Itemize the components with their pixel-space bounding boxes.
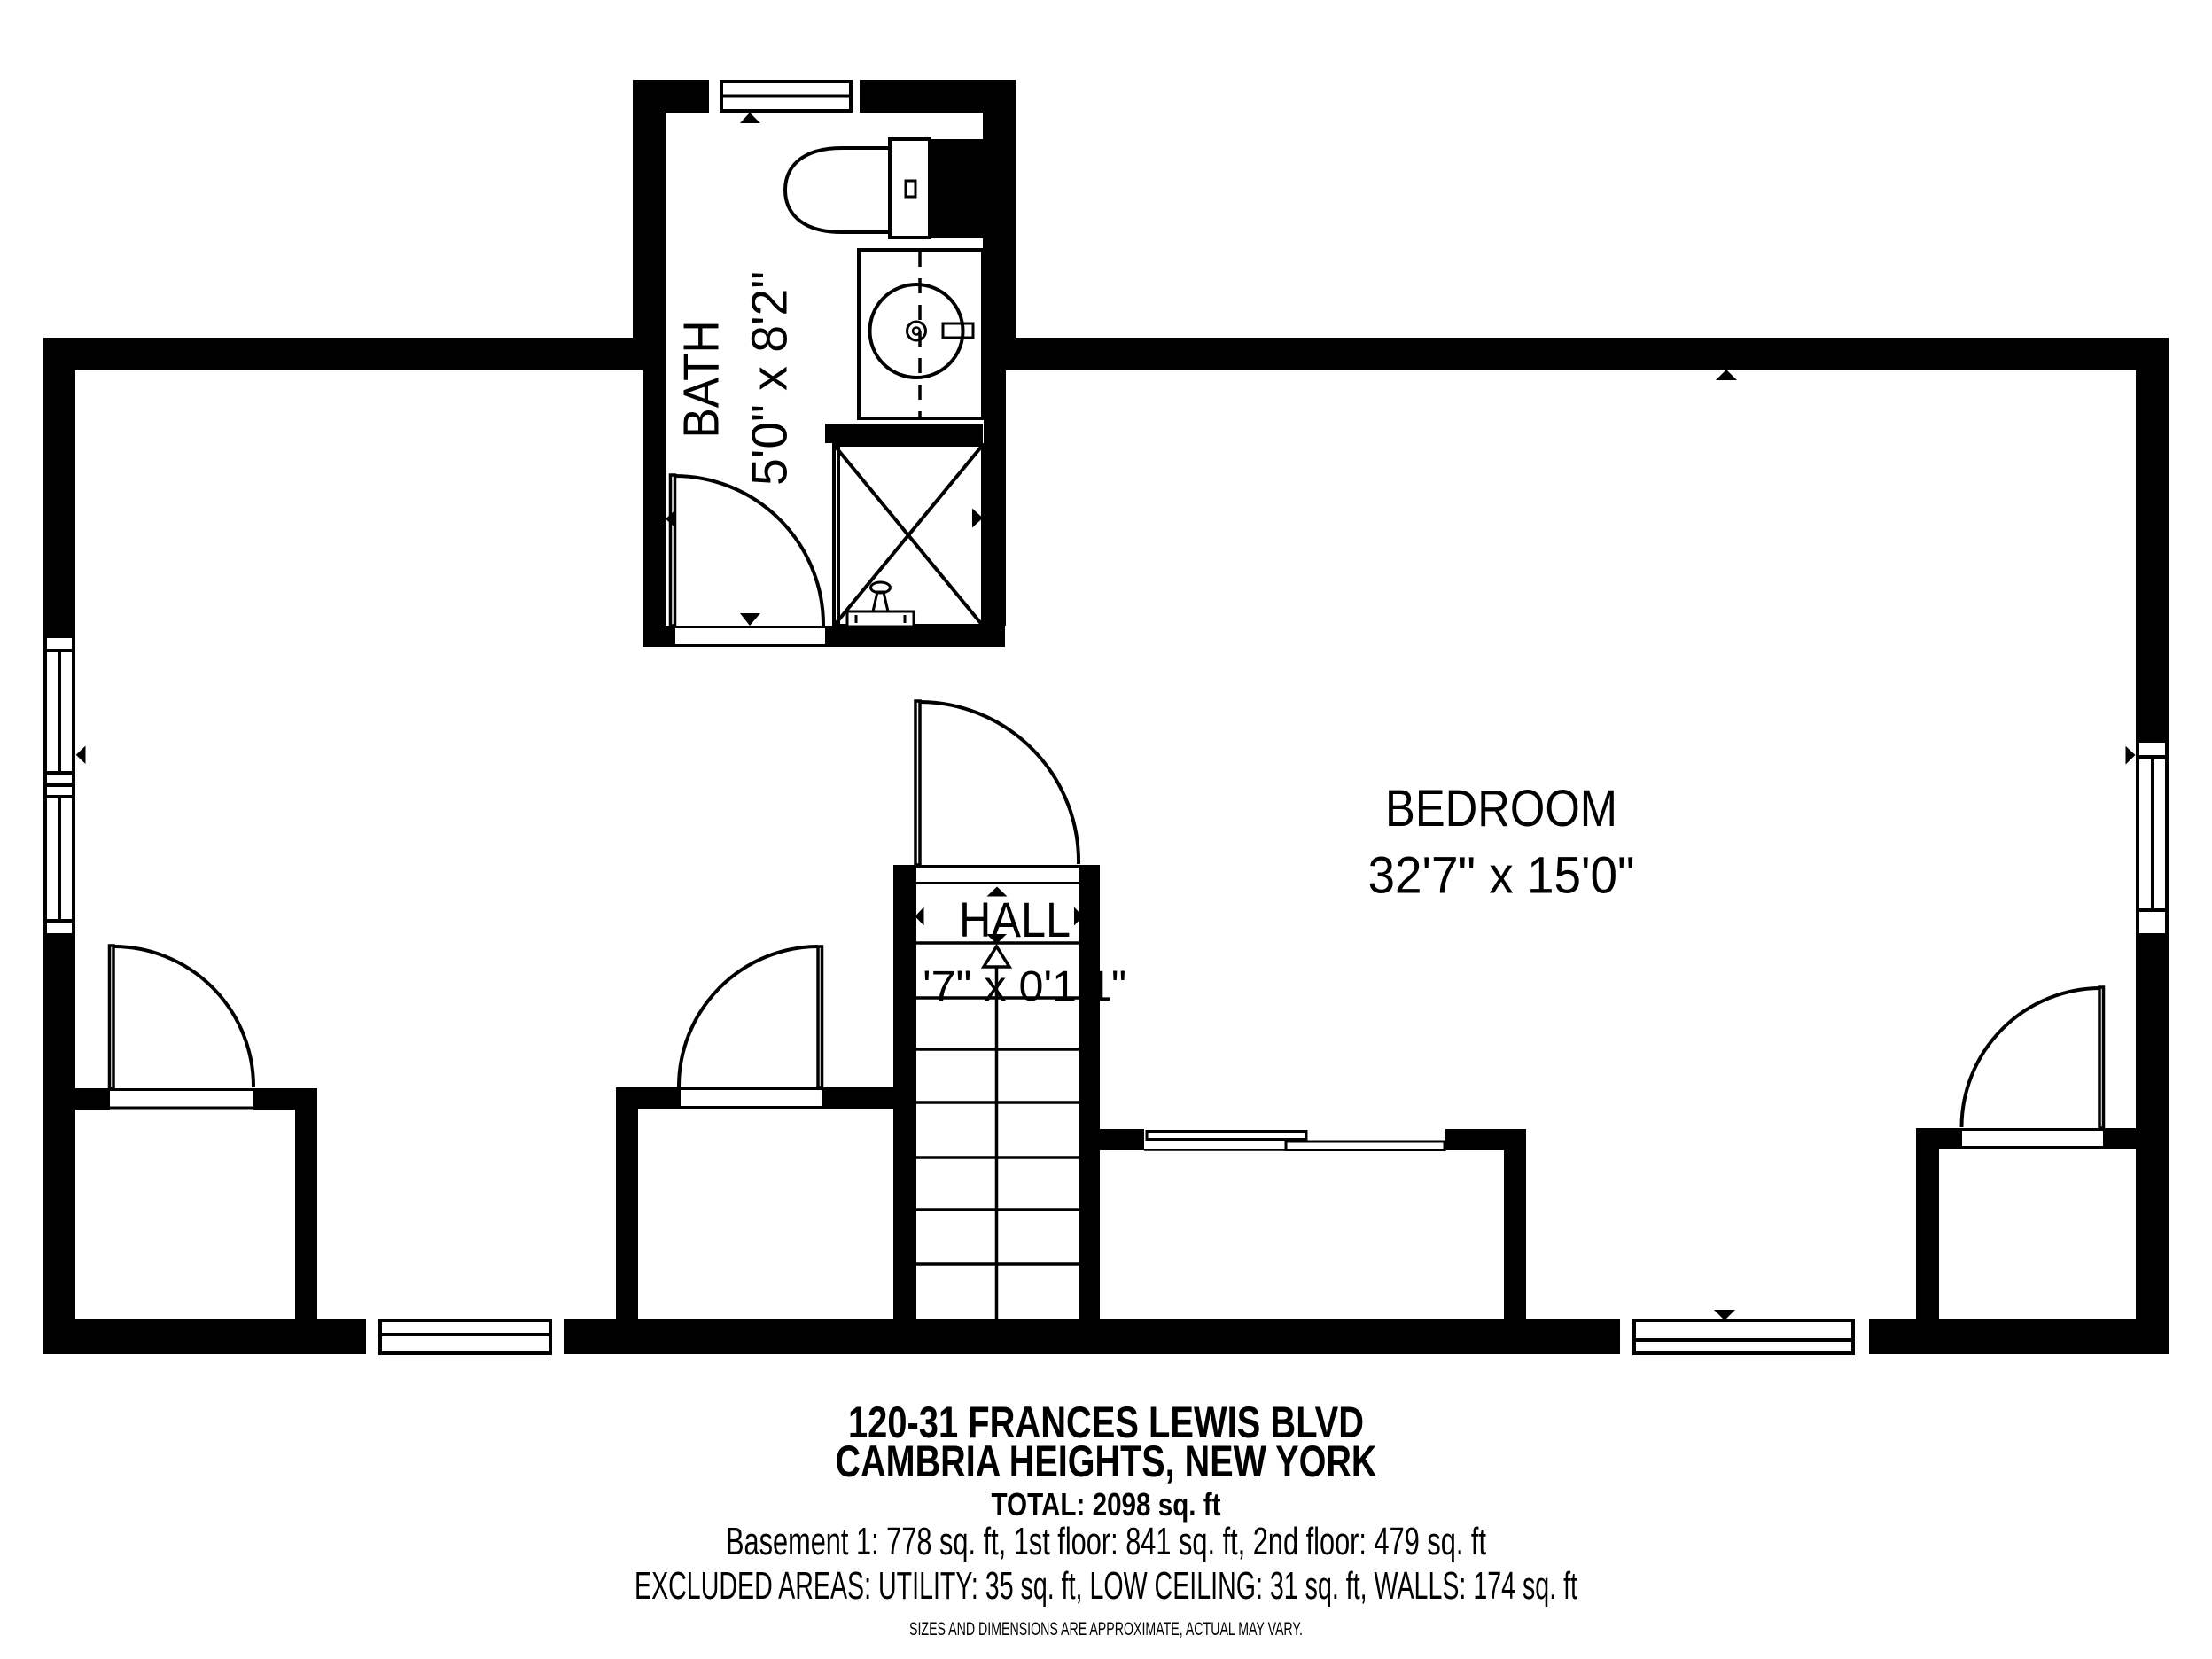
- svg-text:": ": [1111, 963, 1126, 1010]
- svg-text:HALL: HALL: [959, 892, 1071, 947]
- svg-text:Basement 1: 778 sq. ft, 1st fl: Basement 1: 778 sq. ft, 1st floor: 841 s…: [726, 1520, 1486, 1563]
- svg-text:TOTAL: 2098 sq. ft: TOTAL: 2098 sq. ft: [992, 1486, 1221, 1523]
- svg-text:SIZES AND DIMENSIONS ARE APPRO: SIZES AND DIMENSIONS ARE APPROXIMATE, AC…: [909, 1619, 1303, 1640]
- svg-text:BEDROOM: BEDROOM: [1385, 780, 1617, 837]
- svg-text:32'7" x 15'0": 32'7" x 15'0": [1368, 847, 1635, 905]
- svg-text:EXCLUDED AREAS: UTILITY: 35 sq: EXCLUDED AREAS: UTILITY: 35 sq. ft, LOW …: [635, 1564, 1577, 1608]
- svg-text:'7" x 0'1: '7" x 0'1: [923, 963, 1077, 1010]
- svg-text:CAMBRIA HEIGHTS, NEW YORK: CAMBRIA HEIGHTS, NEW YORK: [836, 1437, 1377, 1486]
- svg-text:5'0" x 8'2": 5'0" x 8'2": [742, 271, 798, 486]
- svg-text:BATH: BATH: [674, 321, 730, 439]
